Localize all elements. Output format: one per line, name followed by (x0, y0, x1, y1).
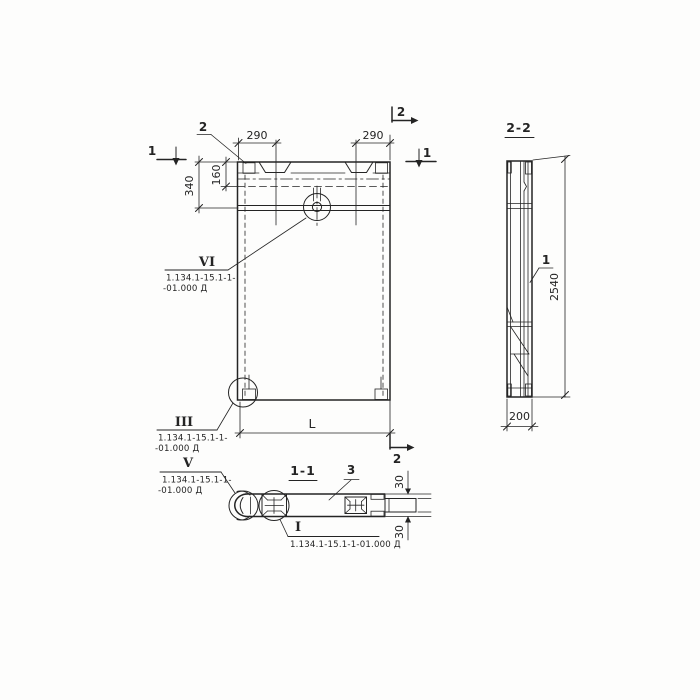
dim-length-L-text: L (309, 416, 316, 431)
top-recess-left (259, 162, 291, 173)
view-direction-arrow (411, 117, 419, 124)
section-marker-2-top-label: 2 (397, 105, 405, 119)
mid-recess (345, 497, 367, 514)
pos-label-1-text: 1 (542, 253, 550, 267)
callout-iii-ref1: 1.134.1-15.1-1- (158, 434, 228, 444)
callout-v-numeral: V (182, 456, 194, 471)
drawing-sheet: 290 290 340 160 1 (0, 0, 700, 700)
detail-circle-vi (228, 186, 331, 270)
side-view-label: 2-2 (506, 120, 532, 135)
dim-200: 200 (501, 399, 538, 431)
dim-2540-text: 2540 (548, 273, 561, 301)
callout-vi: VI 1.134.1-15.1-1- -01.000 Д (163, 255, 236, 294)
embed-top-left (243, 163, 255, 174)
embed-plan-top (371, 494, 384, 499)
view-direction-arrow (416, 160, 423, 168)
dim-290-left-text: 290 (247, 129, 268, 142)
plan-view-label: 1-1 (290, 463, 316, 478)
section-marker-1-left-label: 1 (148, 144, 156, 158)
callout-iii-ref2: -01.000 Д (155, 444, 200, 454)
dim-200-text: 200 (509, 410, 530, 423)
technical-drawing: 290 290 340 160 1 (0, 0, 700, 700)
dim-30-bottom: 30 (393, 516, 411, 540)
pos-label-3-text: 3 (347, 463, 355, 477)
dim-290-left: 290 (233, 129, 281, 147)
top-recess-right (345, 162, 373, 173)
section-marker-2-bottom-label: 2 (393, 452, 401, 466)
dim-30-bottom-text: 30 (393, 525, 406, 539)
embed-bottom-left (243, 389, 256, 400)
callout-i-numeral: I (295, 520, 301, 535)
view-direction-arrow (407, 444, 415, 451)
dim-160-text: 160 (210, 165, 223, 186)
callout-i: I 1.134.1-15.1-1-01.000 Д (280, 520, 401, 551)
plan-section-view: 1-1 (158, 456, 431, 550)
embed-plan-bottom (371, 511, 384, 516)
front-elevation-view: 290 290 340 160 1 (148, 105, 436, 466)
dim-length-L: L (235, 402, 395, 438)
section-marker-1-left: 1 (148, 144, 186, 166)
callout-v: V 1.134.1-15.1-1- -01.000 Д (158, 456, 235, 496)
callout-vi-numeral: VI (198, 255, 215, 270)
view-direction-arrow (173, 158, 180, 166)
dim-30-top: 30 (393, 471, 411, 495)
callout-v-ref2: -01.000 Д (158, 486, 203, 496)
callout-vi-ref1: 1.134.1-15.1-1- (166, 274, 236, 284)
dim-290-right: 290 (351, 129, 394, 147)
pos-label-2-text: 2 (199, 120, 207, 134)
embed-bottom-right (375, 389, 388, 400)
section-marker-1-right: 1 (406, 146, 436, 168)
callout-iii: III 1.134.1-15.1-1- -01.000 Д (155, 415, 228, 454)
dim-30-top-text: 30 (393, 475, 406, 489)
callout-vi-ref2: -01.000 Д (163, 284, 208, 294)
dim-290-right-text: 290 (363, 129, 384, 142)
embed-top-right (376, 163, 388, 174)
callout-v-ref1: 1.134.1-15.1-1- (162, 476, 232, 486)
callout-i-ref: 1.134.1-15.1-1-01.000 Д (290, 540, 401, 550)
dim-340-text: 340 (183, 176, 196, 197)
callout-iii-numeral: III (175, 415, 193, 430)
section-marker-2-top: 2 (392, 105, 419, 124)
section-marker-1-right-label: 1 (423, 146, 431, 160)
side-section-view: 2-2 1 (501, 120, 570, 431)
dim-2540: 2540 (533, 156, 570, 399)
